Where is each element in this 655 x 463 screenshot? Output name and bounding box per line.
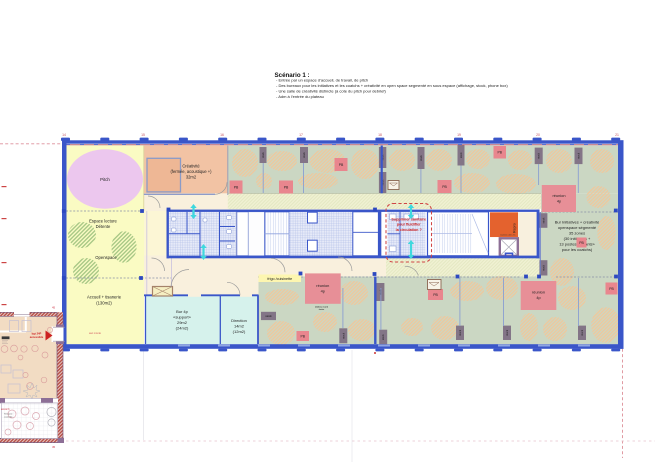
svg-text:stock: stock <box>538 152 541 159</box>
svg-text:tableau mural: tableau mural <box>315 306 328 309</box>
svg-text:Supprimer sanitaire: Supprimer sanitaire <box>391 218 426 222</box>
svg-text:(fermée, acoustique +): (fermée, acoustique +) <box>170 169 212 174</box>
svg-text:Détente: Détente <box>96 224 111 229</box>
svg-text:- Des bureaux pour les initiat: - Des bureaux pour les initiatives et le… <box>276 83 508 88</box>
svg-text:- Une salle de créativité dist: - Une salle de créativité distincte (à c… <box>276 88 387 93</box>
svg-text:Accueil + tisanerie: Accueil + tisanerie <box>87 295 122 300</box>
svg-text:pour les coatchs): pour les coatchs) <box>562 247 593 252</box>
svg-text:Pitch: Pitch <box>100 177 110 182</box>
svg-text:15: 15 <box>141 133 145 137</box>
svg-text:réunion: réunion <box>532 290 545 295</box>
svg-text:16: 16 <box>220 133 224 137</box>
svg-text:stock: stock <box>420 154 423 161</box>
svg-text:- Entrée par un espace d’accue: - Entrée par un espace d’accueil, de tra… <box>276 77 368 82</box>
svg-text:stock: stock <box>460 152 463 159</box>
svg-text:14: 14 <box>62 133 66 137</box>
svg-text:stock: stock <box>265 314 272 318</box>
svg-text:Openspace: Openspace <box>95 255 117 260</box>
svg-text:couverte: couverte <box>4 415 13 418</box>
svg-text:PB: PB <box>609 287 614 291</box>
svg-text:Bur 4p: Bur 4p <box>176 309 189 314</box>
svg-text:stock: stock <box>542 264 545 271</box>
svg-text:stock: stock <box>581 329 584 336</box>
svg-text:PB: PB <box>284 185 289 189</box>
svg-text:PB: PB <box>234 185 239 189</box>
svg-text:14m2: 14m2 <box>234 324 245 329</box>
svg-text:stock: stock <box>506 329 509 336</box>
svg-text:accès th: accès th <box>1 408 10 411</box>
svg-text:réunion: réunion <box>316 283 329 288</box>
svg-text:PB: PB <box>300 334 305 338</box>
svg-text:bgt 24P: bgt 24P <box>32 332 42 336</box>
svg-text:PB: PB <box>433 293 438 297</box>
svg-text:accessible: accessible <box>30 335 44 339</box>
svg-text:PB: PB <box>339 163 344 167</box>
svg-text:4p: 4p <box>321 289 325 294</box>
svg-text:18: 18 <box>378 133 382 137</box>
svg-text:(24m2): (24m2) <box>176 326 189 331</box>
svg-text:PB: PB <box>579 241 584 245</box>
svg-text:Créativité: Créativité <box>182 164 200 169</box>
svg-text:pour fluidifier: pour fluidifier <box>397 223 421 227</box>
svg-text:- Adm à l’entrée du plateau: - Adm à l’entrée du plateau <box>276 94 324 99</box>
svg-text:stock: stock <box>262 151 265 158</box>
svg-text:Terrasse: Terrasse <box>4 413 13 416</box>
svg-text:Bur Initiatives + créativité: Bur Initiatives + créativité <box>555 220 600 225</box>
svg-text:stock: stock <box>342 332 345 339</box>
svg-text:machine café à l’et.: machine café à l’et. <box>500 234 516 237</box>
svg-text:20: 20 <box>536 133 540 137</box>
svg-text:21: 21 <box>615 133 619 137</box>
svg-text:Espace lecture: Espace lecture <box>89 219 117 224</box>
svg-text:4p: 4p <box>557 199 561 204</box>
svg-text:Direction: Direction <box>231 318 247 323</box>
svg-text:asc monte: asc monte <box>89 331 102 335</box>
svg-text:32m2: 32m2 <box>186 175 197 180</box>
svg-text:45: 45 <box>52 306 56 310</box>
svg-text:stock: stock <box>542 217 545 224</box>
svg-text:frigo /cuisinette: frigo /cuisinette <box>267 277 292 281</box>
svg-text:PB: PB <box>497 151 502 155</box>
svg-text:45: 45 <box>52 445 56 449</box>
svg-text:17: 17 <box>299 133 303 137</box>
svg-text:35 zones: 35 zones <box>569 231 585 236</box>
svg-text:stock: stock <box>578 152 581 159</box>
svg-text:29m2: 29m2 <box>177 320 188 325</box>
svg-text:écrire: écrire <box>319 309 325 311</box>
svg-text:la circulation ?: la circulation ? <box>396 228 423 232</box>
svg-text:stock: stock <box>459 329 462 336</box>
svg-text:réunion: réunion <box>553 193 566 198</box>
svg-text:stock: stock <box>303 151 306 158</box>
svg-text:19: 19 <box>457 133 461 137</box>
svg-text:«support»: «support» <box>173 315 192 320</box>
svg-text:stock: stock <box>382 334 385 341</box>
svg-text:PB: PB <box>442 185 447 189</box>
svg-text:(12m2): (12m2) <box>233 329 246 334</box>
svg-text:Repro: Repro <box>513 223 517 233</box>
svg-text:4p: 4p <box>536 295 540 300</box>
svg-text:openspace ségmenté: openspace ségmenté <box>558 225 597 230</box>
svg-text:(130m2): (130m2) <box>96 301 112 306</box>
